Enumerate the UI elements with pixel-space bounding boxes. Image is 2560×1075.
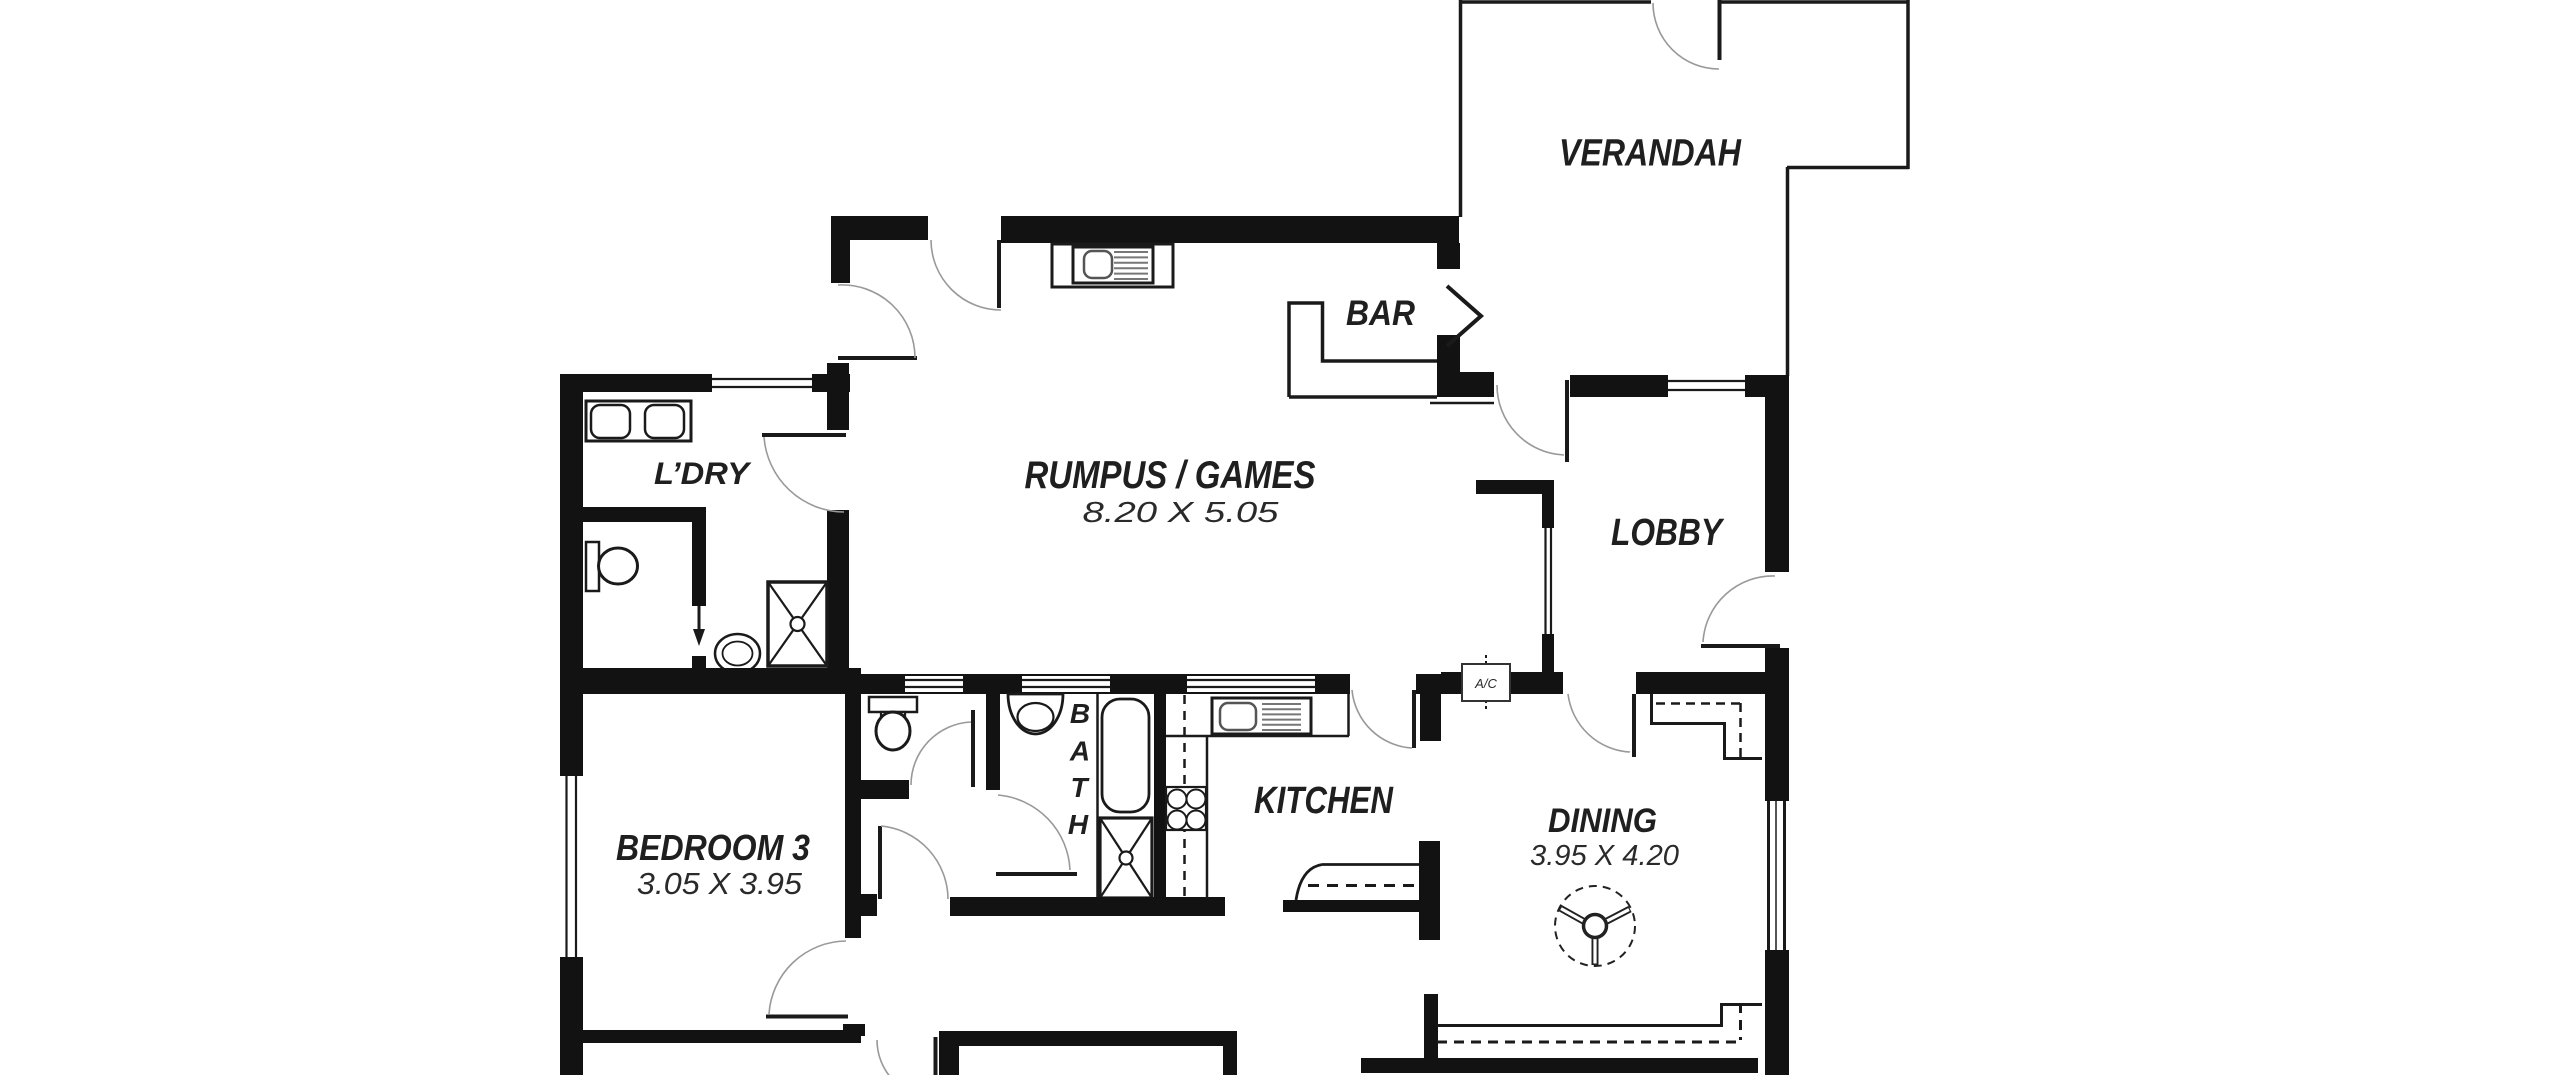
svg-text:BEDROOM 3: BEDROOM 3: [616, 827, 810, 868]
svg-text:H: H: [1068, 809, 1089, 840]
svg-text:8.20 X 5.05: 8.20 X 5.05: [1083, 497, 1279, 529]
svg-text:T: T: [1070, 772, 1090, 803]
svg-text:RUMPUS / GAMES: RUMPUS / GAMES: [1025, 454, 1316, 497]
svg-text:L’DRY: L’DRY: [654, 455, 752, 491]
svg-text:LOBBY: LOBBY: [1611, 512, 1725, 554]
svg-text:VERANDAH: VERANDAH: [1559, 133, 1742, 175]
svg-text:DINING: DINING: [1548, 802, 1657, 840]
svg-text:B: B: [1070, 698, 1090, 729]
svg-text:KITCHEN: KITCHEN: [1254, 780, 1394, 822]
svg-text:A: A: [1069, 736, 1090, 767]
svg-text:A/C: A/C: [1474, 676, 1497, 691]
svg-text:BAR: BAR: [1346, 294, 1416, 333]
svg-text:3.05 X 3.95: 3.05 X 3.95: [637, 867, 803, 901]
svg-text:3.95 X 4.20: 3.95 X 4.20: [1530, 840, 1679, 872]
